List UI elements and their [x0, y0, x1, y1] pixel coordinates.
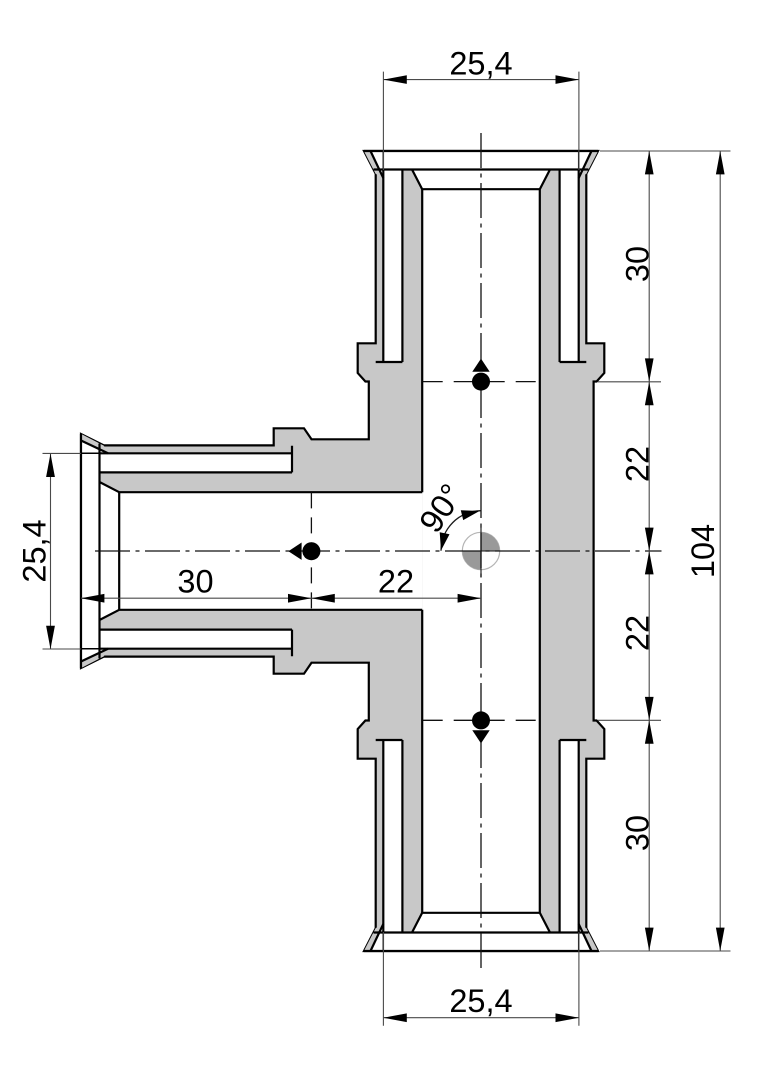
svg-text:30: 30	[177, 564, 213, 600]
svg-text:22: 22	[378, 564, 414, 600]
svg-text:25,4: 25,4	[449, 46, 512, 82]
svg-text:25,4: 25,4	[449, 983, 512, 1019]
svg-text:25,4: 25,4	[17, 519, 53, 582]
svg-text:104: 104	[685, 524, 721, 578]
svg-text:22: 22	[620, 615, 656, 651]
svg-text:30: 30	[620, 246, 656, 282]
svg-text:22: 22	[620, 446, 656, 482]
svg-text:30: 30	[620, 815, 656, 851]
